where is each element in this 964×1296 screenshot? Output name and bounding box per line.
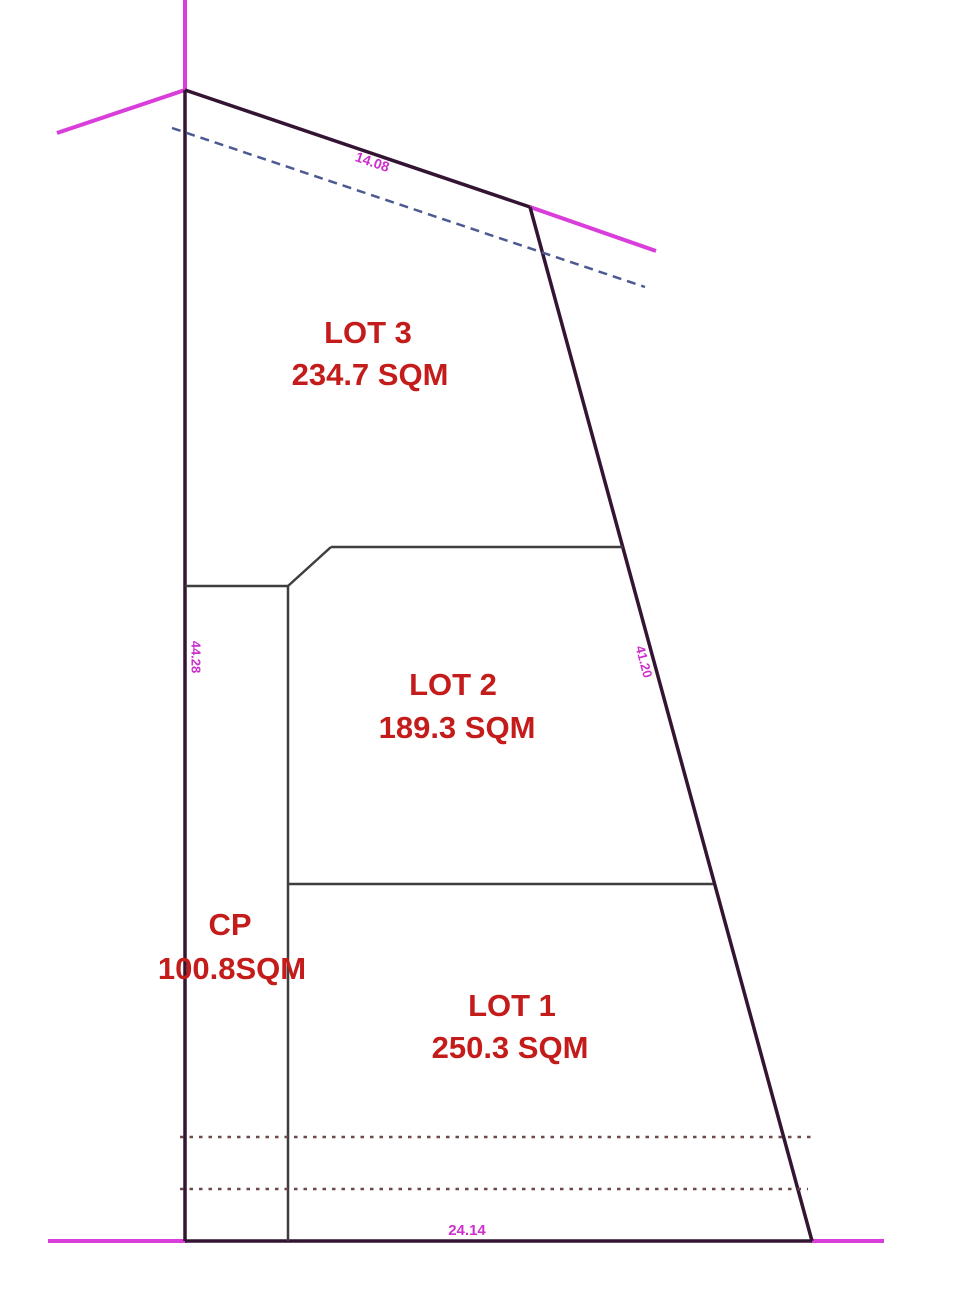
lot2-chamfer-line-line [288, 547, 331, 586]
lot-3-name-label: LOT 3 [324, 315, 412, 350]
tie-dashed-line-line [172, 128, 645, 287]
cp-name-label: CP [208, 907, 251, 942]
dim-left-edge-label: 44.28 [189, 641, 204, 674]
road-line-top-right-diagonal-line [530, 207, 656, 251]
subdivision-plan-svg: LOT 3234.7 SQMLOT 2189.3 SQMCP100.8SQMLO… [0, 0, 964, 1296]
dim-bottom-edge-label: 24.14 [448, 1222, 486, 1239]
lot-1-area-label: 250.3 SQM [432, 1030, 589, 1065]
cp-area-label: 100.8SQM [158, 951, 306, 986]
dim-top-edge-label: 14.08 [353, 149, 392, 176]
lot-2-name-label: LOT 2 [409, 667, 497, 702]
lot-3-area-label: 234.7 SQM [292, 357, 449, 392]
plan-labels-group: LOT 3234.7 SQMLOT 2189.3 SQMCP100.8SQMLO… [158, 149, 656, 1239]
lot-1-name-label: LOT 1 [468, 988, 556, 1023]
subdivision-plan-page: LOT 3234.7 SQMLOT 2189.3 SQMCP100.8SQMLO… [0, 0, 964, 1296]
lot-2-area-label: 189.3 SQM [379, 710, 536, 745]
road-line-top-left-diagonal-line [57, 90, 185, 133]
boundary-right-line [530, 207, 812, 1241]
